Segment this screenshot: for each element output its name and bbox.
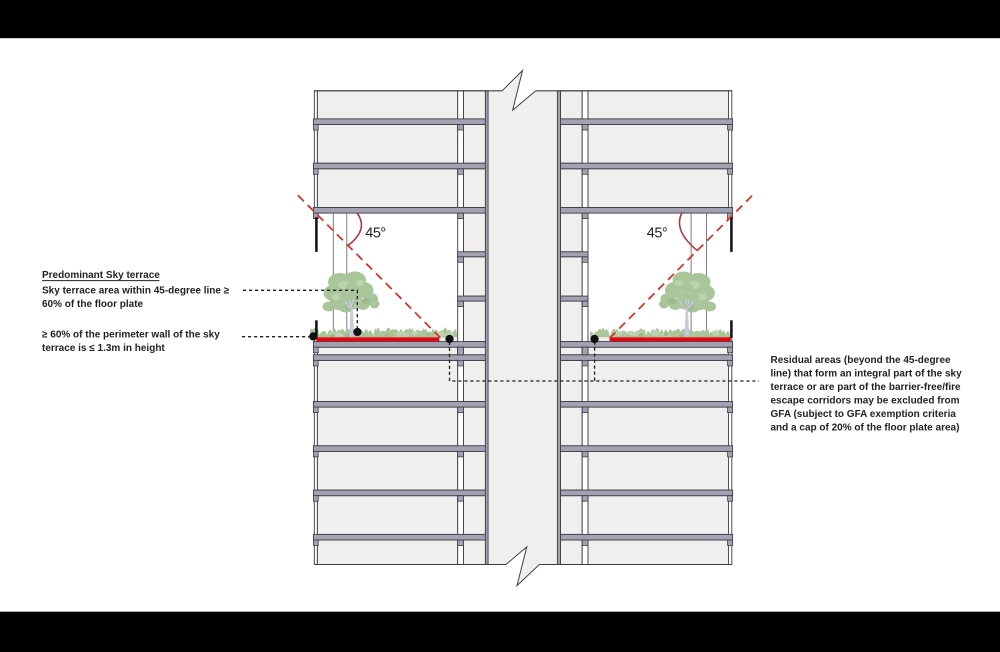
svg-text:Predominant Sky terrace: Predominant Sky terrace [42, 270, 160, 281]
svg-text:and a cap of 20% of the floor: and a cap of 20% of the floor plate area… [771, 423, 960, 434]
svg-text:escape corridors may be exclud: escape corridors may be excluded from [771, 396, 960, 407]
svg-text:Sky terrace area within 45-deg: Sky terrace area within 45-degree line ≥ [42, 285, 230, 296]
svg-text:GFA (subject to GFA exemption: GFA (subject to GFA exemption criteria [771, 409, 957, 420]
svg-text:Residual areas (beyond the 45-: Residual areas (beyond the 45-degree [771, 355, 952, 366]
svg-text:≥ 60% of the perimeter wall of: ≥ 60% of the perimeter wall of the sky [42, 329, 220, 340]
svg-text:60% of the floor plate: 60% of the floor plate [42, 299, 144, 310]
svg-text:terrace is ≤ 1.3m in height: terrace is ≤ 1.3m in height [42, 343, 165, 354]
svg-text:terrace or are part of the bar: terrace or are part of the barrier-free/… [771, 382, 962, 393]
svg-text:45°: 45° [647, 226, 667, 242]
svg-text:45°: 45° [365, 226, 385, 242]
svg-text:line) that form an integral pa: line) that form an integral part of the … [771, 369, 963, 380]
